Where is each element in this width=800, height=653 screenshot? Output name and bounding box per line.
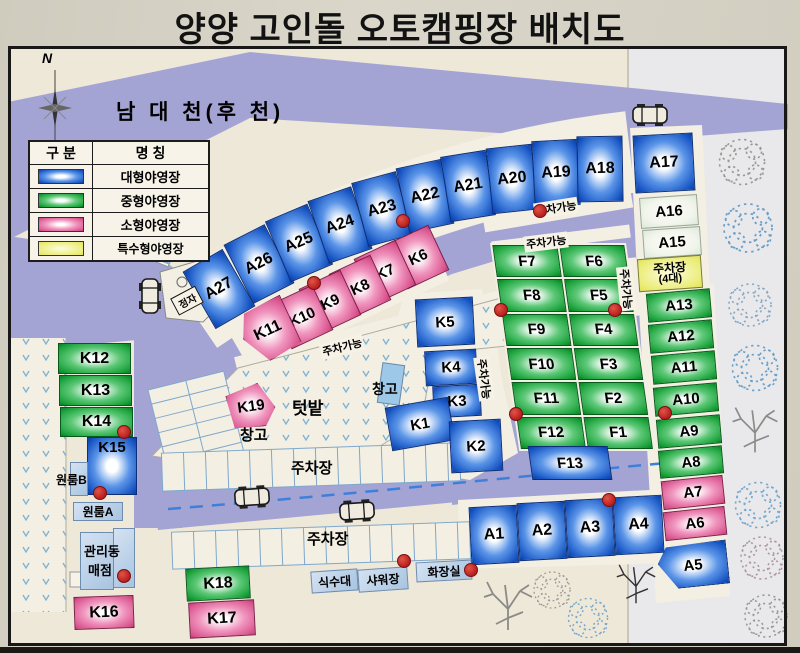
site-k17: K17: [188, 599, 256, 638]
site-a2: A2: [517, 501, 568, 561]
parking-lot-label-2: 주차장: [307, 528, 348, 549]
legend-swatch-large: [38, 169, 84, 184]
parking-4cars-box: 주차장 (4대): [637, 255, 703, 292]
site-k15: K15: [87, 437, 137, 495]
site-k12: K12: [58, 343, 131, 374]
red-dot: [464, 563, 478, 577]
campground-map-board: 양양 고인돌 오토캠핑장 배치도 N 남 대 천(후 천) 구 분 명 칭 대형…: [0, 0, 800, 653]
red-dot: [494, 303, 508, 317]
red-dot: [307, 276, 321, 290]
site-a13: A13: [646, 288, 712, 322]
water-station: 식수대: [310, 568, 358, 593]
legend-header-category: 구 분: [30, 142, 93, 164]
car-icon: [633, 104, 667, 126]
warehouse-label-2: 창고: [240, 424, 268, 445]
legend-swatch-special: [38, 241, 84, 256]
car-icon: [339, 499, 374, 523]
site-a15: A15: [642, 226, 702, 259]
site-a4: A4: [613, 495, 665, 555]
site-f2: F2: [579, 382, 649, 414]
site-f10: F10: [507, 348, 577, 380]
legend-label-special: 특수형야영장: [93, 237, 208, 260]
site-f1: F1: [583, 417, 653, 449]
store-label: 매점: [88, 560, 112, 579]
legend-label-large: 대형야영장: [93, 165, 208, 188]
site-f12: F12: [516, 417, 586, 449]
site-k18: K18: [185, 565, 251, 601]
red-dot: [509, 407, 523, 421]
site-k2: K2: [449, 419, 504, 474]
admin-label: 관리동: [84, 541, 120, 560]
garden-label: 텃밭: [292, 394, 323, 419]
site-a8: A8: [658, 445, 724, 478]
legend-header-name: 명 칭: [93, 142, 208, 164]
parking-lot-label-1: 주차장: [291, 457, 332, 478]
legend-label-medium: 중형야영장: [93, 189, 208, 212]
site-a12: A12: [648, 319, 714, 353]
compass-north-label: N: [42, 50, 52, 66]
red-dot: [658, 406, 672, 420]
red-dot: [397, 554, 411, 568]
board-bottom-edge: [0, 647, 800, 653]
site-k4: K4: [424, 349, 478, 387]
site-f4: F4: [569, 314, 639, 346]
car-icon: [234, 485, 269, 509]
site-a1: A1: [469, 505, 520, 565]
site-f13: F13: [528, 446, 613, 480]
river-label: 남 대 천(후 천): [116, 96, 284, 126]
red-dot: [117, 425, 131, 439]
site-k16: K16: [73, 595, 134, 630]
site-a17: A17: [633, 132, 696, 193]
legend-label-small: 소형야영장: [93, 213, 208, 236]
parking-4cars-line2: (4대): [658, 273, 682, 286]
car-icon: [139, 279, 161, 313]
site-a18: A18: [576, 136, 623, 203]
warehouse-label-1: 창고: [372, 379, 398, 399]
site-k5: K5: [415, 297, 475, 348]
site-a20: A20: [486, 144, 539, 214]
red-dot: [533, 204, 547, 218]
legend-swatch-small: [38, 217, 84, 232]
site-a11: A11: [651, 350, 717, 384]
legend: 구 분 명 칭 대형야영장 중형야영장 소형야영장 특수형야영장: [28, 140, 210, 262]
red-dot: [93, 486, 107, 500]
shower-building: 샤워장: [357, 566, 408, 592]
map-title: 양양 고인돌 오토캠핑장 배치도: [0, 2, 800, 51]
legend-swatch-medium: [38, 193, 84, 208]
site-f3: F3: [574, 348, 644, 380]
red-dot: [602, 493, 616, 507]
site-f9: F9: [502, 314, 572, 346]
oneroom-b-label: 원룸B: [56, 471, 87, 488]
oneroom-a-building: 원룸A: [73, 502, 123, 521]
site-a16: A16: [639, 194, 699, 229]
red-dot: [117, 569, 131, 583]
red-dot: [608, 303, 622, 317]
red-dot: [396, 214, 410, 228]
site-k13: K13: [59, 375, 132, 406]
